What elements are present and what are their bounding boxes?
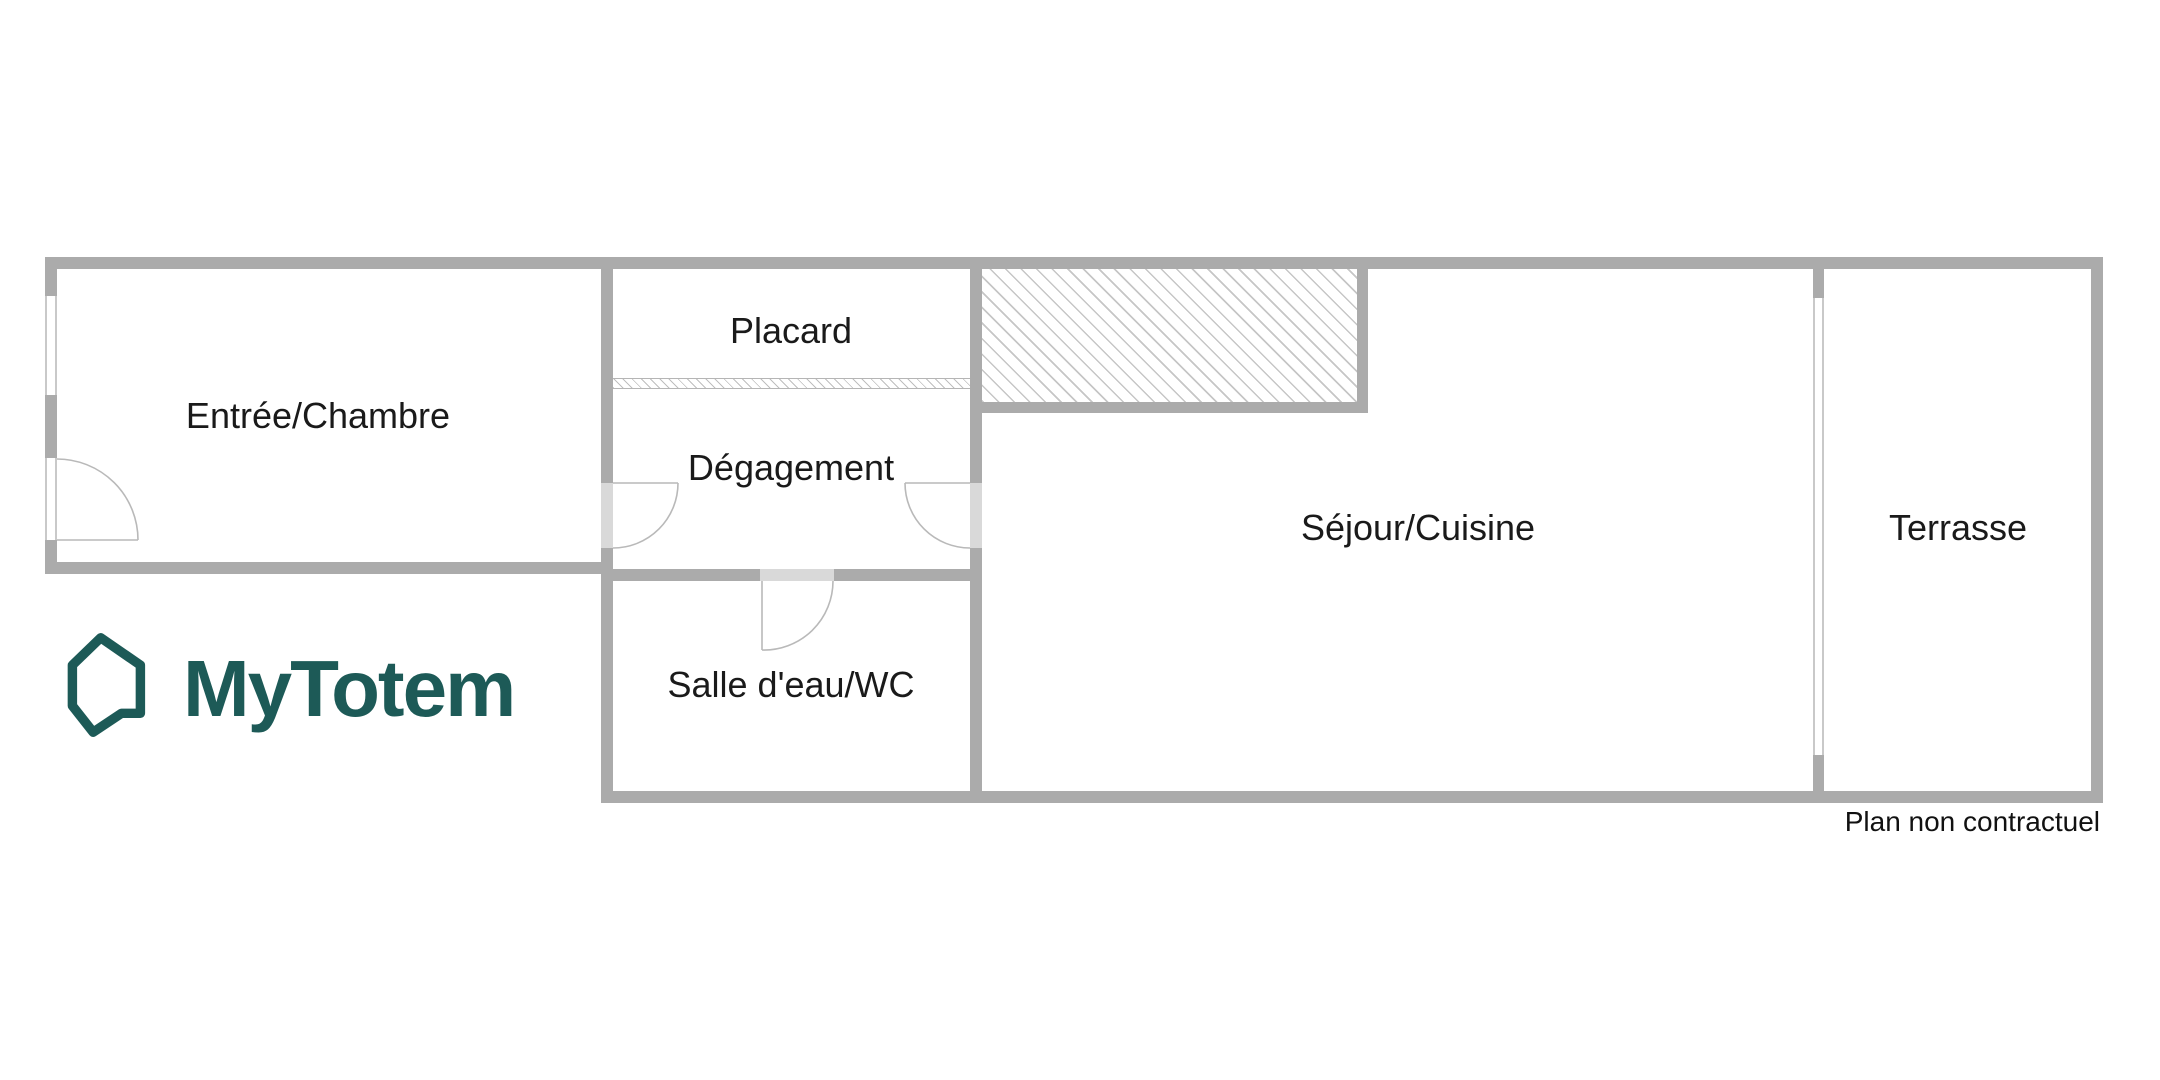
wall-hatch-right [1357,257,1368,413]
wall-right [2091,257,2103,803]
floor-plan: Entrée/Chambre Placard Dégagement Salle … [0,0,2160,1080]
hatched-zone [982,269,1357,402]
wall-left-seg-1 [45,257,57,296]
wall-hatch-bottom [982,402,1368,413]
window-entree-door-frame [45,458,57,540]
door-opening-salleeau [760,569,834,581]
door-arc-salleeau [762,581,833,650]
bay-window-sejour-terrasse [1813,298,1824,755]
wall-terrasse-sep-bottom [1813,755,1824,791]
floorplan-page: { "logo": { "brand": "MyTotem", "icon": … [0,0,2160,1080]
door-arc-degagement-left [613,483,678,548]
wall-top [45,257,2103,269]
wall-left-seg-2 [45,395,57,458]
door-opening-degagement-left [601,483,613,548]
wall-midcol-right-seg-1 [970,257,982,483]
door-arc-degagement-right [905,483,970,548]
brand-logo: MyTotem [60,630,620,760]
room-label-degagement: Dégagement [688,447,894,489]
placard-front-band [613,378,970,389]
room-label-entree: Entrée/Chambre [186,395,450,437]
wall-terrasse-sep-top [1813,269,1824,298]
brand-name: MyTotem [183,649,514,729]
wall-bottom [601,791,2103,803]
door-arc-entree [57,459,138,540]
room-label-terrasse: Terrasse [1889,507,2027,549]
room-label-placard: Placard [730,310,852,352]
wall-entree-bottom [45,562,613,574]
room-label-sejour: Séjour/Cuisine [1301,507,1535,549]
window-entree [45,296,57,395]
wall-midcol-right-seg-2 [970,548,982,803]
door-swings-layer [0,0,2160,1080]
door-opening-degagement-right [970,483,982,548]
room-label-salle-eau: Salle d'eau/WC [668,664,915,706]
disclaimer-text: Plan non contractuel [1845,806,2100,838]
house-speech-bubble-icon [62,633,147,737]
wall-midcol-left-seg-1 [601,257,613,483]
